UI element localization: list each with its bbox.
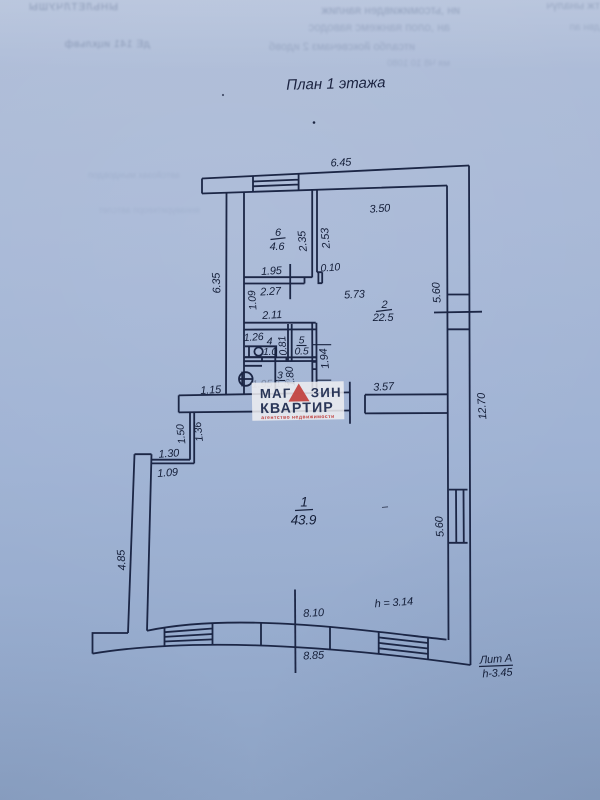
- svg-text:h-3.45: h-3.45: [482, 666, 514, 680]
- svg-text:1.94: 1.94: [318, 348, 332, 370]
- svg-text:1.09: 1.09: [246, 290, 260, 311]
- svg-text:0.81: 0.81: [276, 335, 290, 356]
- svg-text:1.15: 1.15: [200, 384, 222, 397]
- svg-text:12.70: 12.70: [476, 391, 490, 419]
- svg-text:3.50: 3.50: [369, 202, 391, 215]
- svg-text:5.60: 5.60: [430, 281, 443, 303]
- svg-text:1: 1: [300, 495, 307, 510]
- svg-text:1.0: 1.0: [263, 346, 277, 358]
- svg-text:Лит А: Лит А: [478, 652, 512, 666]
- svg-text:1.36: 1.36: [192, 421, 206, 442]
- svg-text:5.60: 5.60: [433, 515, 446, 537]
- svg-text:22.5: 22.5: [372, 312, 395, 324]
- svg-text:8.85: 8.85: [303, 649, 325, 662]
- svg-text:агентство недвижимости: агентство недвижимости: [261, 414, 334, 421]
- svg-text:2.53: 2.53: [319, 226, 333, 250]
- svg-text:3.57: 3.57: [373, 381, 395, 394]
- svg-text:1.30: 1.30: [158, 447, 180, 460]
- svg-text:43.9: 43.9: [291, 513, 317, 528]
- svg-text:1.95: 1.95: [261, 265, 283, 278]
- svg-text:6: 6: [275, 227, 282, 239]
- svg-text:4.6: 4.6: [270, 241, 286, 253]
- svg-text:8.10: 8.10: [303, 607, 325, 620]
- svg-text:2.35: 2.35: [296, 229, 310, 253]
- svg-text:1.09: 1.09: [157, 467, 178, 480]
- svg-text:2: 2: [381, 299, 388, 311]
- svg-text:h = 3.14: h = 3.14: [374, 596, 413, 611]
- svg-text:0.10: 0.10: [320, 261, 341, 274]
- svg-text:6.35: 6.35: [210, 271, 223, 293]
- svg-text:МАГ: МАГ: [260, 386, 292, 402]
- svg-text:1.50: 1.50: [174, 423, 188, 444]
- svg-text:0.5: 0.5: [295, 345, 309, 357]
- svg-text:2.11: 2.11: [261, 309, 282, 322]
- svg-text:2.27: 2.27: [259, 285, 282, 298]
- svg-text:ЗИН: ЗИН: [311, 385, 342, 401]
- svg-text:4.85: 4.85: [115, 548, 128, 570]
- svg-text:6.45: 6.45: [330, 156, 352, 169]
- svg-text:План 1 этажа: План 1 этажа: [286, 74, 386, 94]
- svg-text:1.26: 1.26: [243, 331, 264, 344]
- svg-text:5.73: 5.73: [344, 288, 366, 301]
